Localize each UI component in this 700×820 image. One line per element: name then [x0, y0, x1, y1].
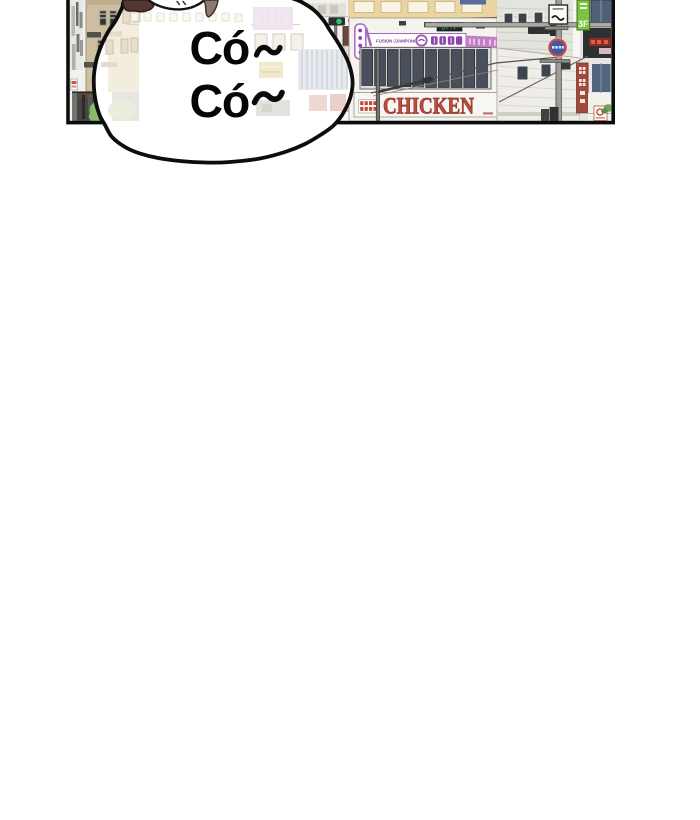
svg-text:3F: 3F: [578, 19, 589, 29]
svg-text:Có: Có: [190, 75, 250, 127]
svg-text:CHICKEN: CHICKEN: [383, 94, 474, 119]
svg-text:Có: Có: [190, 22, 250, 74]
svg-text:FUSION JJAMPONG: FUSION JJAMPONG: [376, 39, 418, 44]
